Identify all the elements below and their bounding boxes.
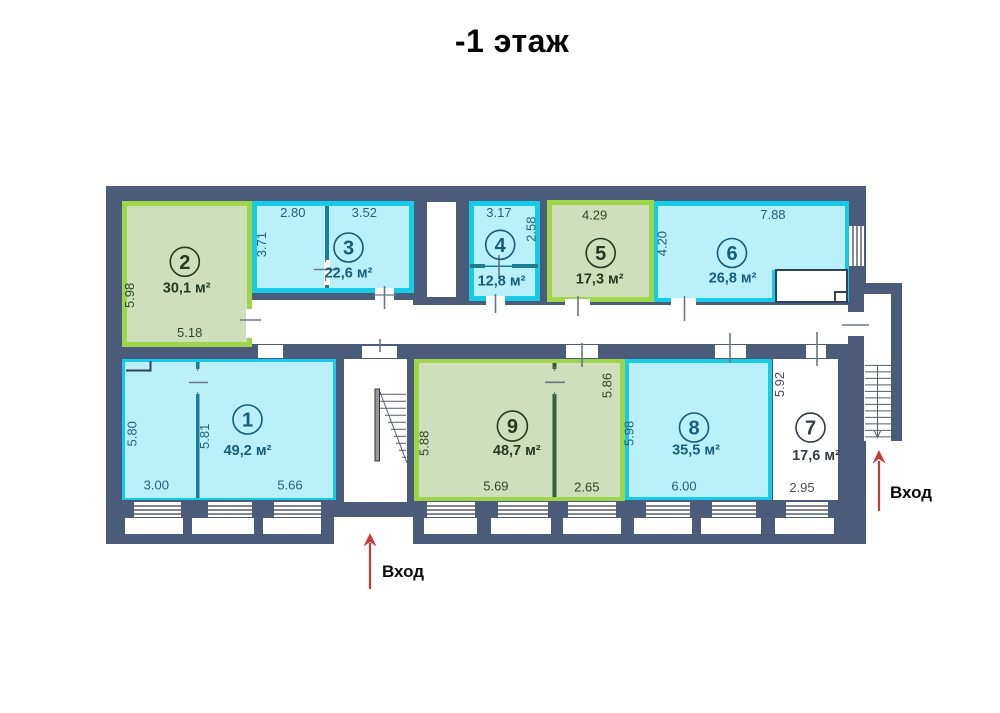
svg-text:3.00: 3.00 <box>144 478 169 493</box>
svg-text:17,3 м²: 17,3 м² <box>576 271 624 287</box>
svg-text:49,2 м²: 49,2 м² <box>224 443 272 459</box>
svg-text:5.88: 5.88 <box>416 431 431 456</box>
svg-text:2.65: 2.65 <box>574 480 599 495</box>
svg-text:5.80: 5.80 <box>124 421 139 446</box>
svg-text:5: 5 <box>595 243 606 265</box>
svg-text:17,6 м²: 17,6 м² <box>792 448 840 464</box>
svg-text:5.98: 5.98 <box>122 283 137 308</box>
svg-text:5.69: 5.69 <box>483 478 508 493</box>
svg-text:5.92: 5.92 <box>772 372 787 397</box>
svg-text:4: 4 <box>495 235 507 257</box>
svg-text:6.00: 6.00 <box>671 479 696 494</box>
svg-text:3.17: 3.17 <box>486 205 511 220</box>
svg-text:35,5 м²: 35,5 м² <box>672 443 720 459</box>
svg-text:9: 9 <box>507 416 518 438</box>
svg-text:5.66: 5.66 <box>277 478 302 493</box>
svg-text:5.86: 5.86 <box>599 373 614 398</box>
svg-text:48,7 м²: 48,7 м² <box>493 443 541 459</box>
svg-text:Вход: Вход <box>890 483 932 502</box>
svg-text:5.98: 5.98 <box>622 421 637 446</box>
svg-text:1: 1 <box>242 410 253 432</box>
svg-text:26,8 м²: 26,8 м² <box>709 270 757 286</box>
svg-text:-1 этаж: -1 этаж <box>455 23 569 59</box>
svg-text:30,1 м²: 30,1 м² <box>163 281 211 297</box>
svg-text:7: 7 <box>805 418 816 440</box>
svg-text:2.80: 2.80 <box>280 205 305 220</box>
svg-text:3.52: 3.52 <box>352 205 377 220</box>
svg-text:3: 3 <box>343 238 354 260</box>
svg-text:12,8 м²: 12,8 м² <box>478 274 526 290</box>
svg-text:2.95: 2.95 <box>789 480 814 495</box>
svg-text:22,6 м²: 22,6 м² <box>325 266 373 282</box>
svg-text:8: 8 <box>688 418 699 440</box>
svg-text:3.71: 3.71 <box>254 232 269 257</box>
svg-text:5.18: 5.18 <box>177 325 202 340</box>
svg-text:4.29: 4.29 <box>582 208 607 223</box>
svg-text:4.20: 4.20 <box>655 231 670 256</box>
svg-text:2.58: 2.58 <box>523 217 538 242</box>
svg-text:Вход: Вход <box>382 562 424 581</box>
svg-text:5.81: 5.81 <box>197 424 212 449</box>
svg-text:6: 6 <box>726 243 737 265</box>
svg-text:2: 2 <box>179 252 190 274</box>
svg-text:7.88: 7.88 <box>760 207 785 222</box>
